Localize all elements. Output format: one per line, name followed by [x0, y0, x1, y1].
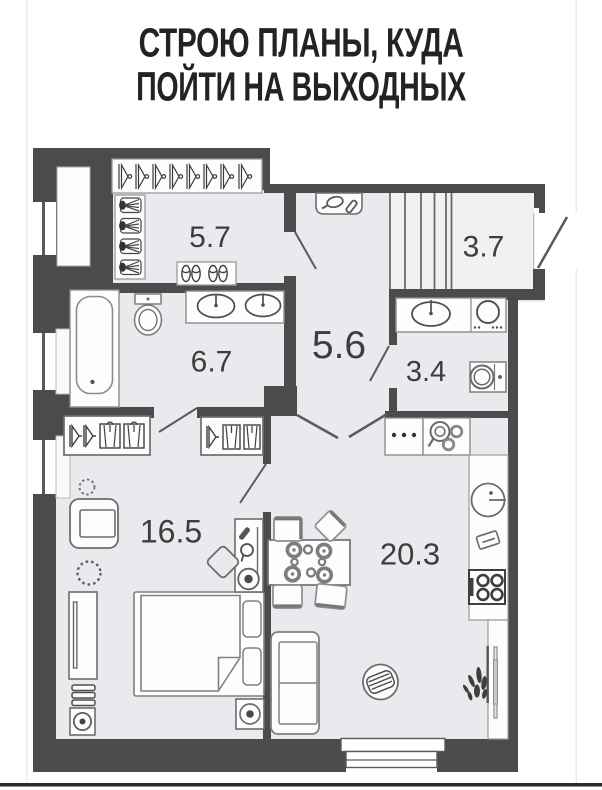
svg-text:3.7: 3.7 [463, 231, 505, 264]
svg-text:ПОЙТИ НА ВЫХОДНЫХ: ПОЙТИ НА ВЫХОДНЫХ [136, 63, 466, 109]
svg-text:СТРОЮ ПЛАНЫ, КУДА: СТРОЮ ПЛАНЫ, КУДА [139, 20, 464, 66]
svg-text:3.4: 3.4 [406, 356, 446, 388]
svg-text:6.7: 6.7 [191, 346, 233, 379]
svg-text:20.3: 20.3 [380, 537, 440, 572]
svg-text:5.6: 5.6 [312, 324, 366, 367]
svg-text:16.5: 16.5 [140, 514, 202, 550]
svg-text:5.7: 5.7 [189, 221, 231, 254]
